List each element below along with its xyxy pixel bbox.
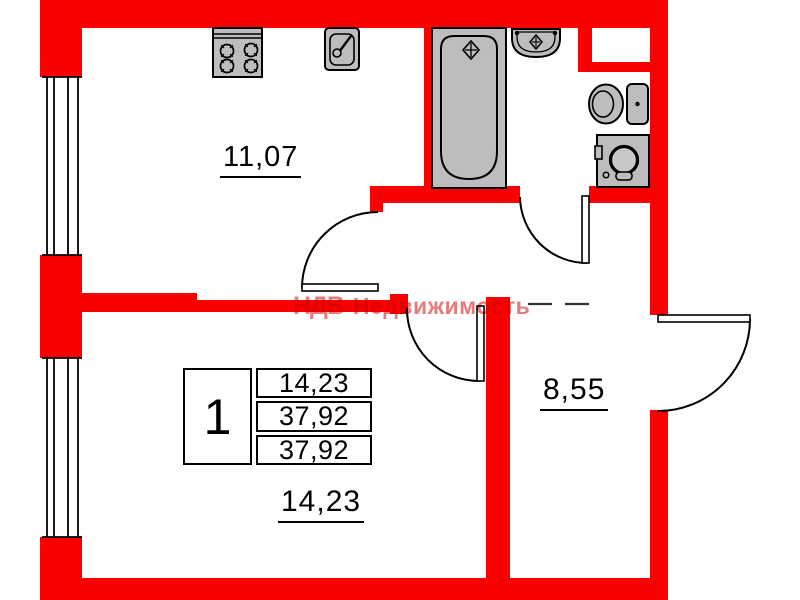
kitchen-sink-icon bbox=[325, 28, 359, 70]
wall-bottom bbox=[40, 578, 668, 600]
wall-top bbox=[40, 0, 668, 28]
agency-watermark: НДВ Недвижимость bbox=[293, 294, 530, 319]
bathroom-door-arc bbox=[520, 197, 587, 263]
kitchen-door-leaf bbox=[302, 284, 378, 291]
kitchen-area-label: 11,07 bbox=[220, 143, 301, 178]
wall-left-mid-pier bbox=[40, 255, 82, 358]
agency-name: Недвижимость bbox=[353, 295, 530, 318]
floor-plan: 11,07 14,23 8,55 1 14,23 37,92 37,92 НДВ… bbox=[0, 0, 800, 600]
wall-bath-pier bbox=[578, 28, 592, 72]
overall-area-cell: 37,92 bbox=[256, 435, 372, 465]
wall-bathroom-corner-nub bbox=[370, 186, 383, 212]
bathroom-door bbox=[520, 196, 589, 263]
washing-machine-icon bbox=[595, 135, 649, 187]
agency-logo: НДВ bbox=[293, 294, 344, 319]
wall-niche-strip bbox=[592, 62, 653, 72]
entrance-door bbox=[658, 315, 750, 411]
wall-kitchen-divider-thick bbox=[82, 293, 197, 312]
living-area-cell: 14,23 bbox=[256, 368, 372, 398]
wall-right-lower bbox=[650, 410, 668, 600]
stove-icon bbox=[213, 28, 262, 77]
entrance-door-arc bbox=[658, 319, 750, 411]
bathroom-door-leaf bbox=[582, 196, 589, 263]
wall-hallway-living bbox=[486, 297, 510, 580]
total-area-cell: 37,92 bbox=[256, 401, 372, 432]
entrance-door-leaf bbox=[658, 315, 750, 322]
bathtub-icon bbox=[432, 28, 506, 188]
window-upper bbox=[42, 77, 82, 255]
toilet-icon bbox=[589, 84, 648, 124]
hallway-area-label: 8,55 bbox=[540, 375, 608, 411]
washbasin-icon bbox=[512, 29, 560, 57]
wall-right-upper bbox=[650, 0, 668, 315]
apartment-info-table: 1 14,23 37,92 37,92 bbox=[183, 368, 372, 465]
living-room-area-label: 14,23 bbox=[278, 487, 364, 523]
window-lower bbox=[42, 358, 82, 537]
kitchen-door-arc bbox=[302, 212, 378, 288]
wall-top-left-pier bbox=[40, 0, 82, 77]
kitchen-door bbox=[302, 212, 378, 291]
wall-bathroom-bottom-right bbox=[589, 186, 653, 203]
room-count-cell: 1 bbox=[183, 368, 252, 465]
